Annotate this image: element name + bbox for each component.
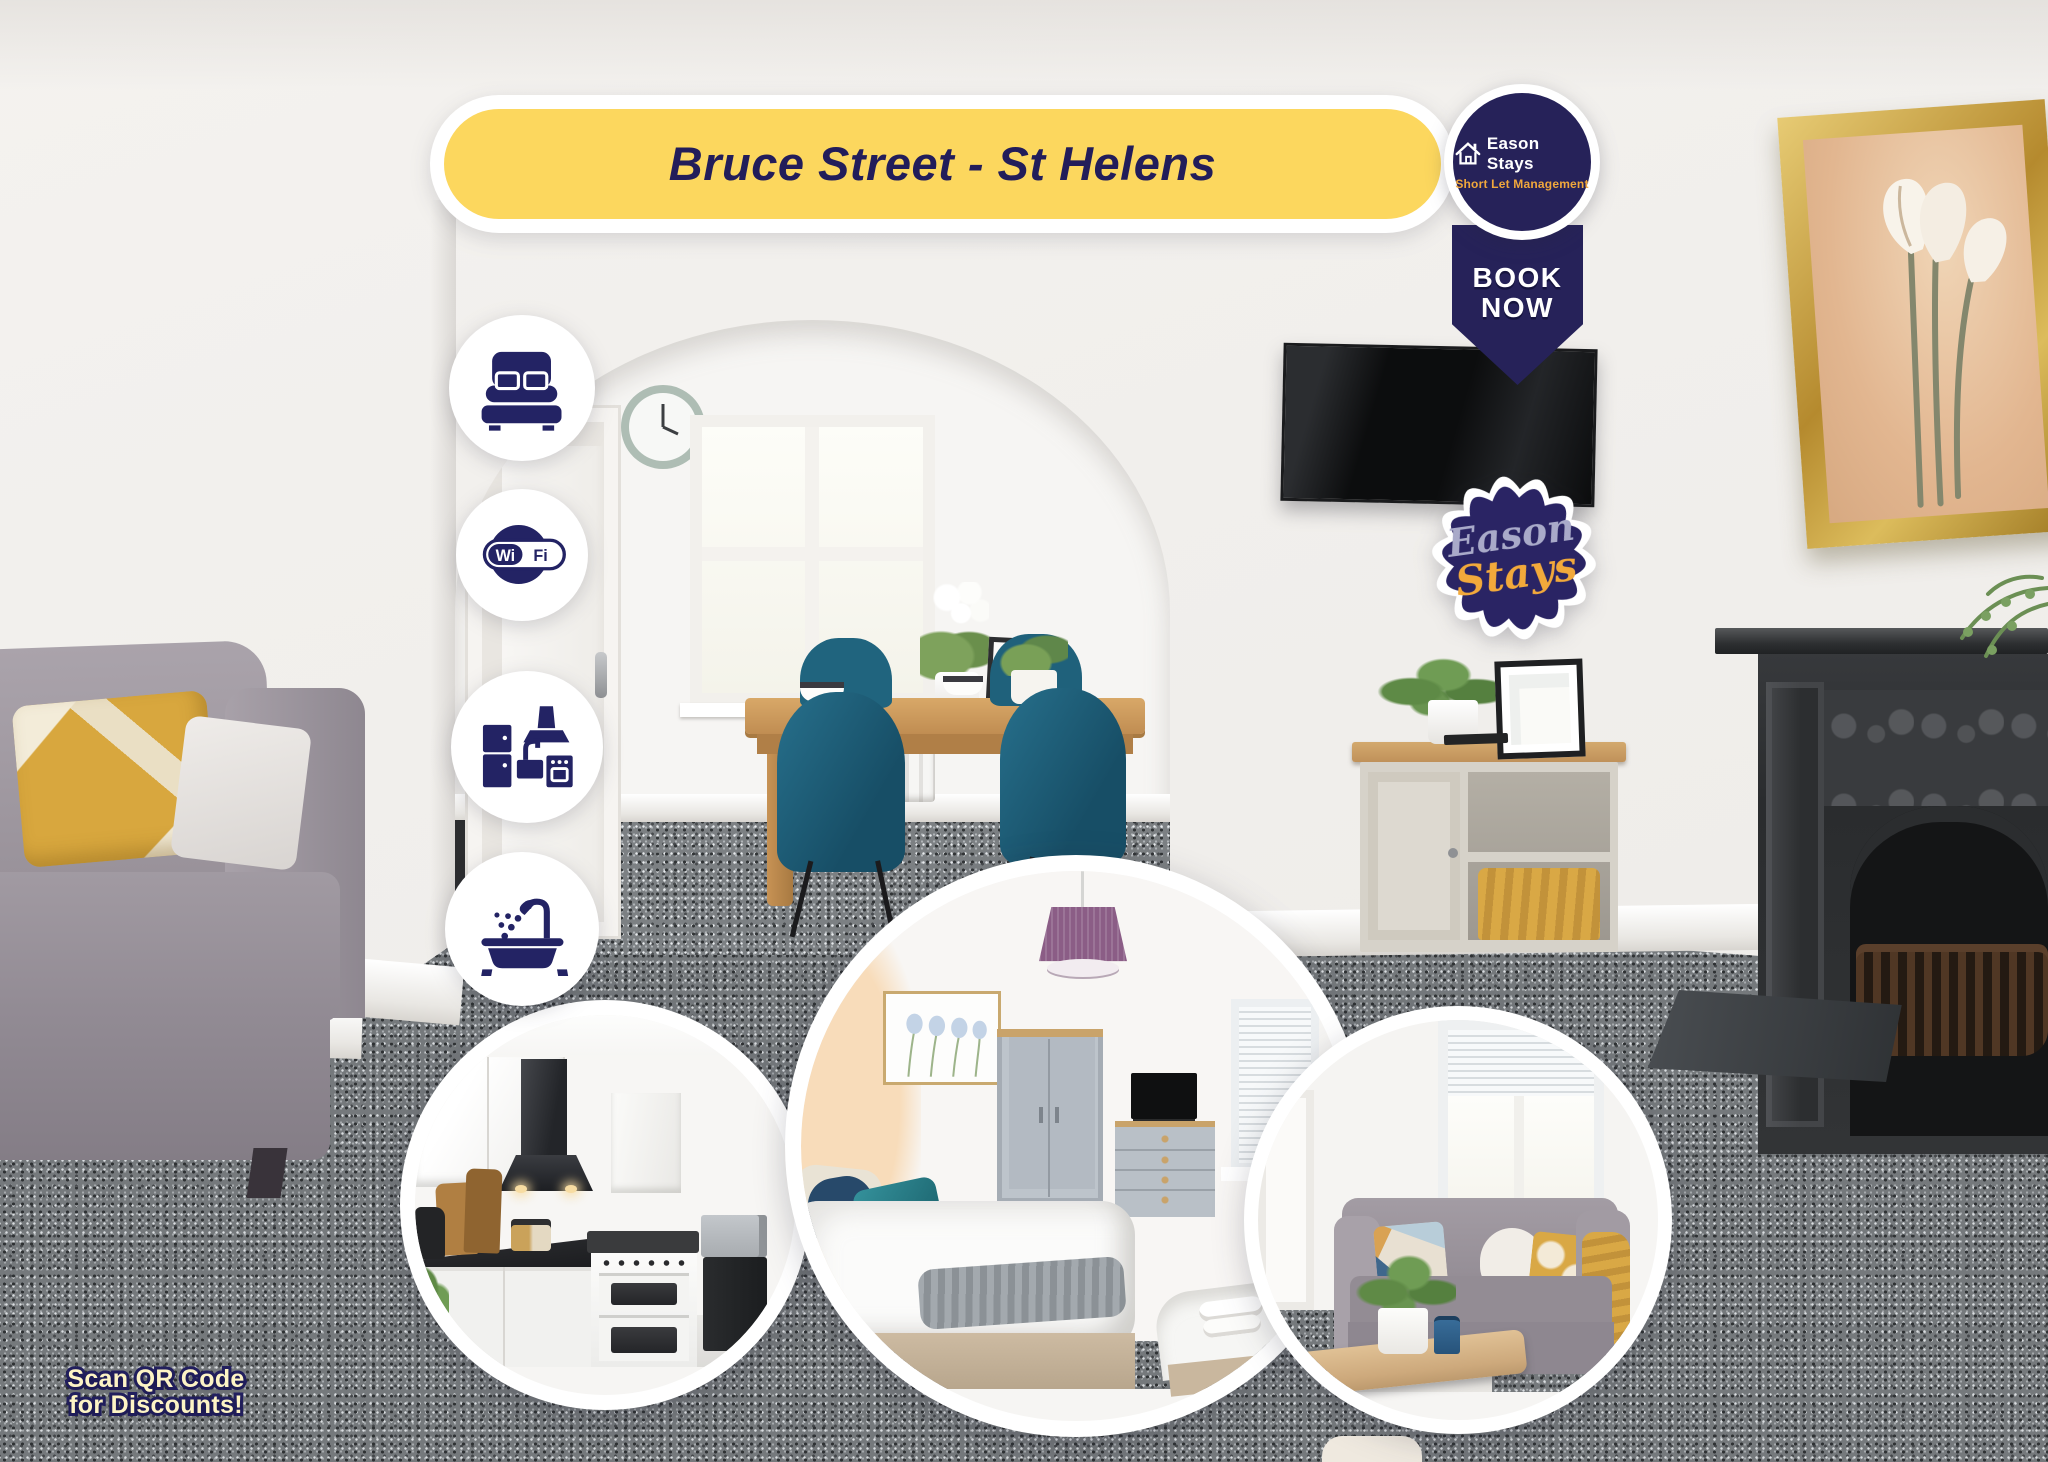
hood-light-1 [515,1185,527,1193]
oven-door-lower [599,1315,689,1361]
calla-lilies-art [1803,125,2048,523]
upper-cabinet-seam [487,1057,489,1187]
brand-badge: Eason Stays Short Let Management [1444,84,1600,240]
bath-icon [467,874,578,985]
sideboard-photo-frame [1494,658,1585,759]
divan-base [831,1333,1135,1389]
orchid-flowers [933,582,989,634]
window-bar-h [702,547,923,561]
chest-of-drawers [1115,1121,1215,1217]
oven-window-lower [611,1327,677,1353]
footer-note: Scan QR Code for Discounts! [36,1366,276,1418]
wall-corner-shadow [430,200,456,1000]
kitchen-photo [415,1015,795,1395]
sofa-cushion-white [170,715,312,871]
sofa-foot [246,1148,287,1198]
pendant-diffuser [1047,959,1119,977]
mantel-greenery [1942,560,2048,670]
ceiling-shadow [0,0,2048,90]
tulip-art-svg [886,994,998,1082]
kitchen-photo-circle [400,1000,810,1410]
tulip-artwork [883,991,1001,1085]
book-now-label: BOOK NOW [1452,263,1583,323]
brand-tagline: Short Let Management [1455,177,1588,191]
extractor-chimney [521,1059,567,1157]
wifi-text-right: Fi [534,548,548,566]
table-plant-pot [1378,1308,1428,1354]
basket-throw-mustard [1478,868,1600,940]
title-banner-inner: Bruce Street - St Helens [444,109,1441,219]
brand-stamp: Eason Stays [1412,456,1615,659]
gold-frame-artwork [1777,99,2048,549]
page-title: Bruce Street - St Helens [444,109,1441,219]
pendant-cord [1081,871,1084,909]
table-bowl-2 [943,676,983,695]
shelf-board [1468,852,1610,862]
cooker-controls [599,1259,689,1267]
sideboard-open-shelf [1468,772,1610,940]
sideboard-body [1360,762,1618,952]
sofa-base [0,1000,330,1160]
amenity-kitchen-circle [451,671,603,823]
wardrobe-handle-r [1055,1107,1059,1123]
fireplace-body [1758,654,2048,1154]
amenity-bed-circle [449,315,595,461]
base-cabinet-seam [503,1267,505,1367]
ribbon-line2: NOW [1452,293,1583,323]
sideboard-door-knob [1448,848,1458,858]
sideboard-door [1368,772,1460,940]
living-window-blinds [1448,1030,1594,1096]
wifi-icon: Wi Fi [474,507,569,602]
wardrobe-handle-l [1039,1107,1043,1123]
title-banner: Bruce Street - St Helens [430,95,1455,233]
living-window-bar [1514,1096,1524,1210]
amenity-wifi-circle: Wi Fi [456,489,588,621]
living-photo [1258,1020,1658,1420]
ribbon-line1: BOOK [1452,263,1583,293]
chopping-board-2 [464,1168,503,1253]
wifi-text-left: Wi [496,548,516,566]
mini-fridge [703,1257,767,1351]
promo-collage: Wi Fi [0,0,2048,1462]
blue-bottle [1434,1316,1460,1354]
storage-jars [511,1219,551,1251]
dining-chair-near-left [777,692,905,872]
house-icon [1453,140,1483,168]
wardrobe-seam [1048,1039,1050,1197]
living-photo-circle [1244,1006,1672,1434]
dining-chair-near-right [1000,688,1126,866]
wardrobe [997,1029,1103,1203]
footer-line1: Scan QR Code [36,1366,276,1392]
hood-light-2 [565,1185,577,1193]
upper-cabinet-right [611,1093,681,1193]
bedroom-tv [1131,1073,1197,1119]
living-window [1438,1020,1604,1220]
amenity-bath-circle [445,852,599,1006]
pouffe [1322,1436,1422,1462]
oven-window-upper [611,1283,677,1305]
plant-leaf [415,1265,449,1325]
oven-door-upper [599,1273,689,1311]
kettle [415,1207,445,1259]
door-handle [595,652,607,698]
microwave [701,1215,767,1257]
fireplace-frieze [1824,690,2048,806]
brand-name: Eason Stays [1487,134,1591,174]
footer-line2: for Discounts! [36,1392,276,1418]
kitchen-icon [472,692,581,801]
cooker-hob [587,1231,699,1253]
cupboard-door [1258,1090,1314,1310]
artwork-canvas [1803,125,2048,523]
bed-icon [469,335,574,440]
